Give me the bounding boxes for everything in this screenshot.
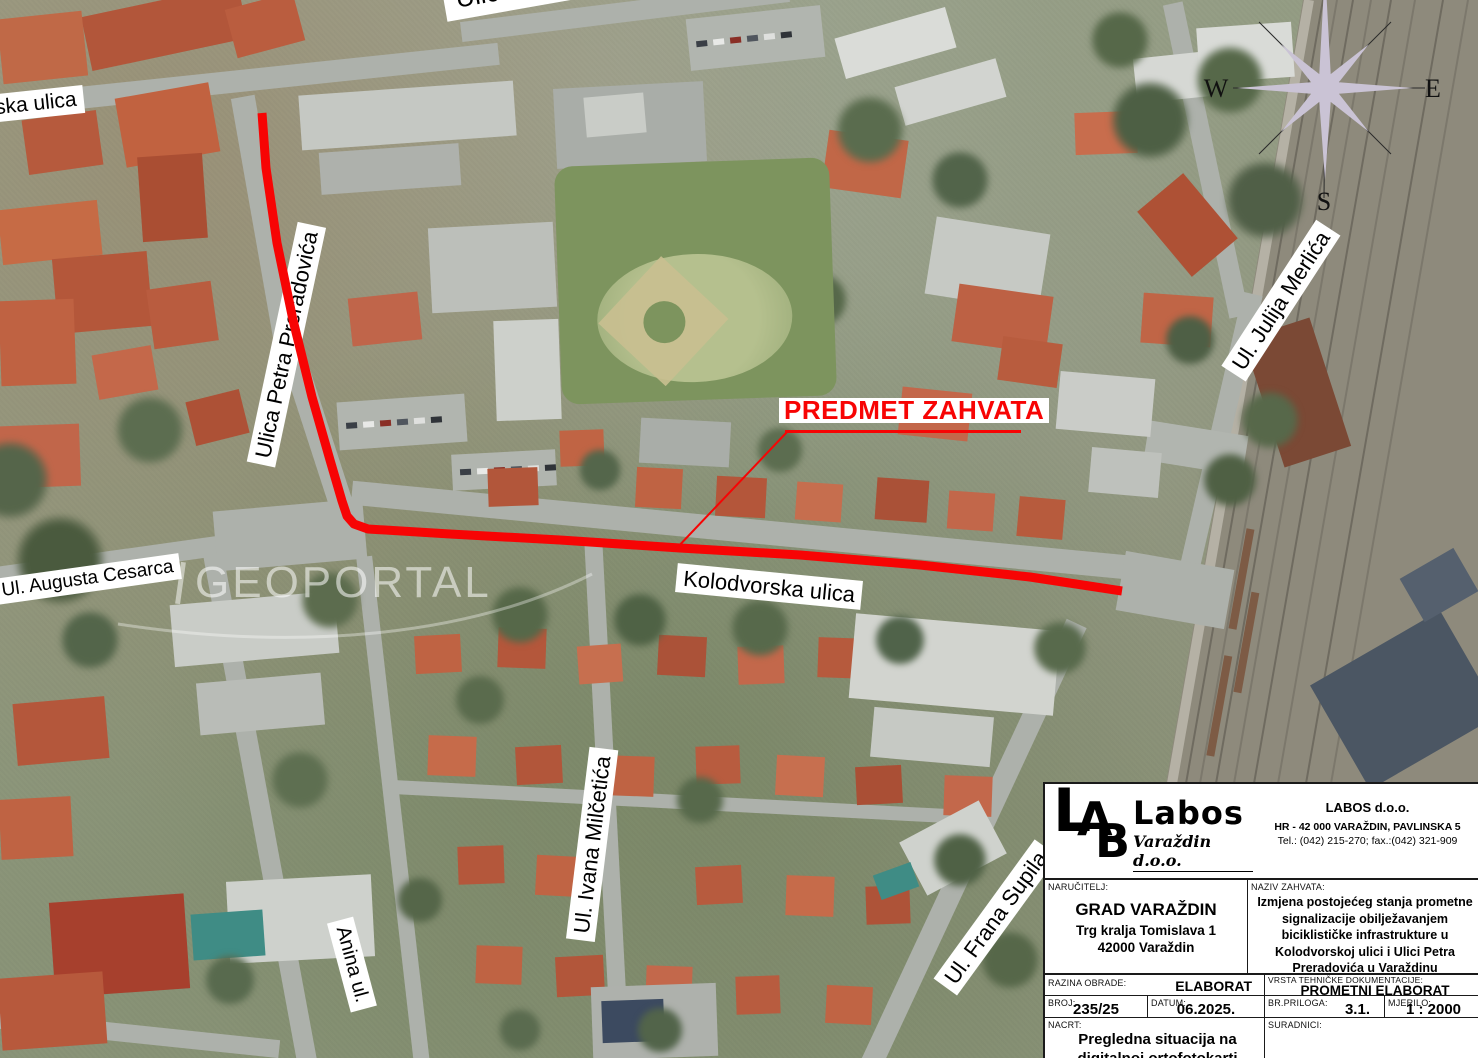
doc-type-cell: VRSTA TEHNIČKE DOKUMENTACIJE: PROMETNI E…	[1265, 975, 1478, 995]
client-label: NARUČITELJ:	[1048, 882, 1108, 892]
company-phone: Tel.: (042) 215-270; fax.:(042) 321-909	[1253, 835, 1478, 847]
date-label: DATUM:	[1151, 998, 1186, 1008]
client-address-1: Trg kralja Tomislava 1	[1045, 922, 1247, 939]
drawing-value: Pregledna situacija na digitalnoj ortofo…	[1061, 1030, 1254, 1058]
route-highlight	[262, 113, 1122, 591]
map-canvas: GEOPORTAL PREDMET ZAHVATA ska ulica Ulic…	[0, 0, 1478, 1058]
logo-name: Labos	[1133, 798, 1253, 828]
drawing-cell: NACRT: Pregledna situacija na digitalnoj…	[1045, 1018, 1265, 1058]
company-info: LABOS d.o.o. HR - 42 000 VARAŽDIN, PAVLI…	[1253, 784, 1478, 878]
company-name: LABOS d.o.o.	[1253, 800, 1478, 815]
scale-cell: MJERILO: 1 : 2000	[1385, 996, 1478, 1017]
titleblock: L A B Labos Varaždin d.o.o. LABOS d.o.o.…	[1043, 782, 1478, 1058]
logo-subtitle: Varaždin d.o.o.	[1133, 832, 1253, 872]
number-cell: BROJ: 235/25	[1045, 996, 1148, 1017]
client-name: GRAD VARAŽDIN	[1045, 900, 1247, 920]
level-cell: RAZINA OBRADE: ELABORAT	[1045, 975, 1265, 995]
collaborators-label: SURADNICI:	[1268, 1020, 1322, 1030]
attachment-cell: BR.PRILOGA: 3.1.	[1265, 996, 1385, 1017]
client-cell: NARUČITELJ: GRAD VARAŽDIN Trg kralja Tom…	[1045, 880, 1248, 973]
company-address: HR - 42 000 VARAŽDIN, PAVLINSKA 5	[1253, 821, 1478, 833]
project-title-label: NAZIV ZAHVATA:	[1251, 882, 1325, 892]
attachment-label: BR.PRILOGA:	[1268, 998, 1328, 1008]
collaborators-cell: SURADNICI:	[1265, 1018, 1478, 1058]
client-address-2: 42000 Varaždin	[1045, 939, 1247, 956]
annotation-predmet-zahvata: PREDMET ZAHVATA	[779, 398, 1049, 423]
doc-type-value: PROMETNI ELABORAT	[1268, 985, 1478, 996]
drawing-label: NACRT:	[1048, 1020, 1082, 1030]
annotation-underline	[785, 430, 1021, 433]
project-title-text: Izmjena postojećeg stanja prometne signa…	[1254, 894, 1476, 977]
level-value: ELABORAT	[1175, 979, 1252, 994]
titleblock-header: L A B Labos Varaždin d.o.o. LABOS d.o.o.…	[1045, 784, 1478, 880]
number-label: BROJ:	[1048, 998, 1076, 1008]
project-title-cell: NAZIV ZAHVATA: Izmjena postojećeg stanja…	[1248, 880, 1478, 973]
labos-logo: L A B Labos Varaždin d.o.o.	[1045, 784, 1253, 878]
date-cell: DATUM: 06.2025.	[1148, 996, 1265, 1017]
scale-label: MJERILO:	[1388, 998, 1431, 1008]
annotation-leader-line	[674, 432, 787, 551]
level-label: RAZINA OBRADE:	[1045, 976, 1126, 988]
labos-monogram: L A B	[1053, 784, 1133, 874]
